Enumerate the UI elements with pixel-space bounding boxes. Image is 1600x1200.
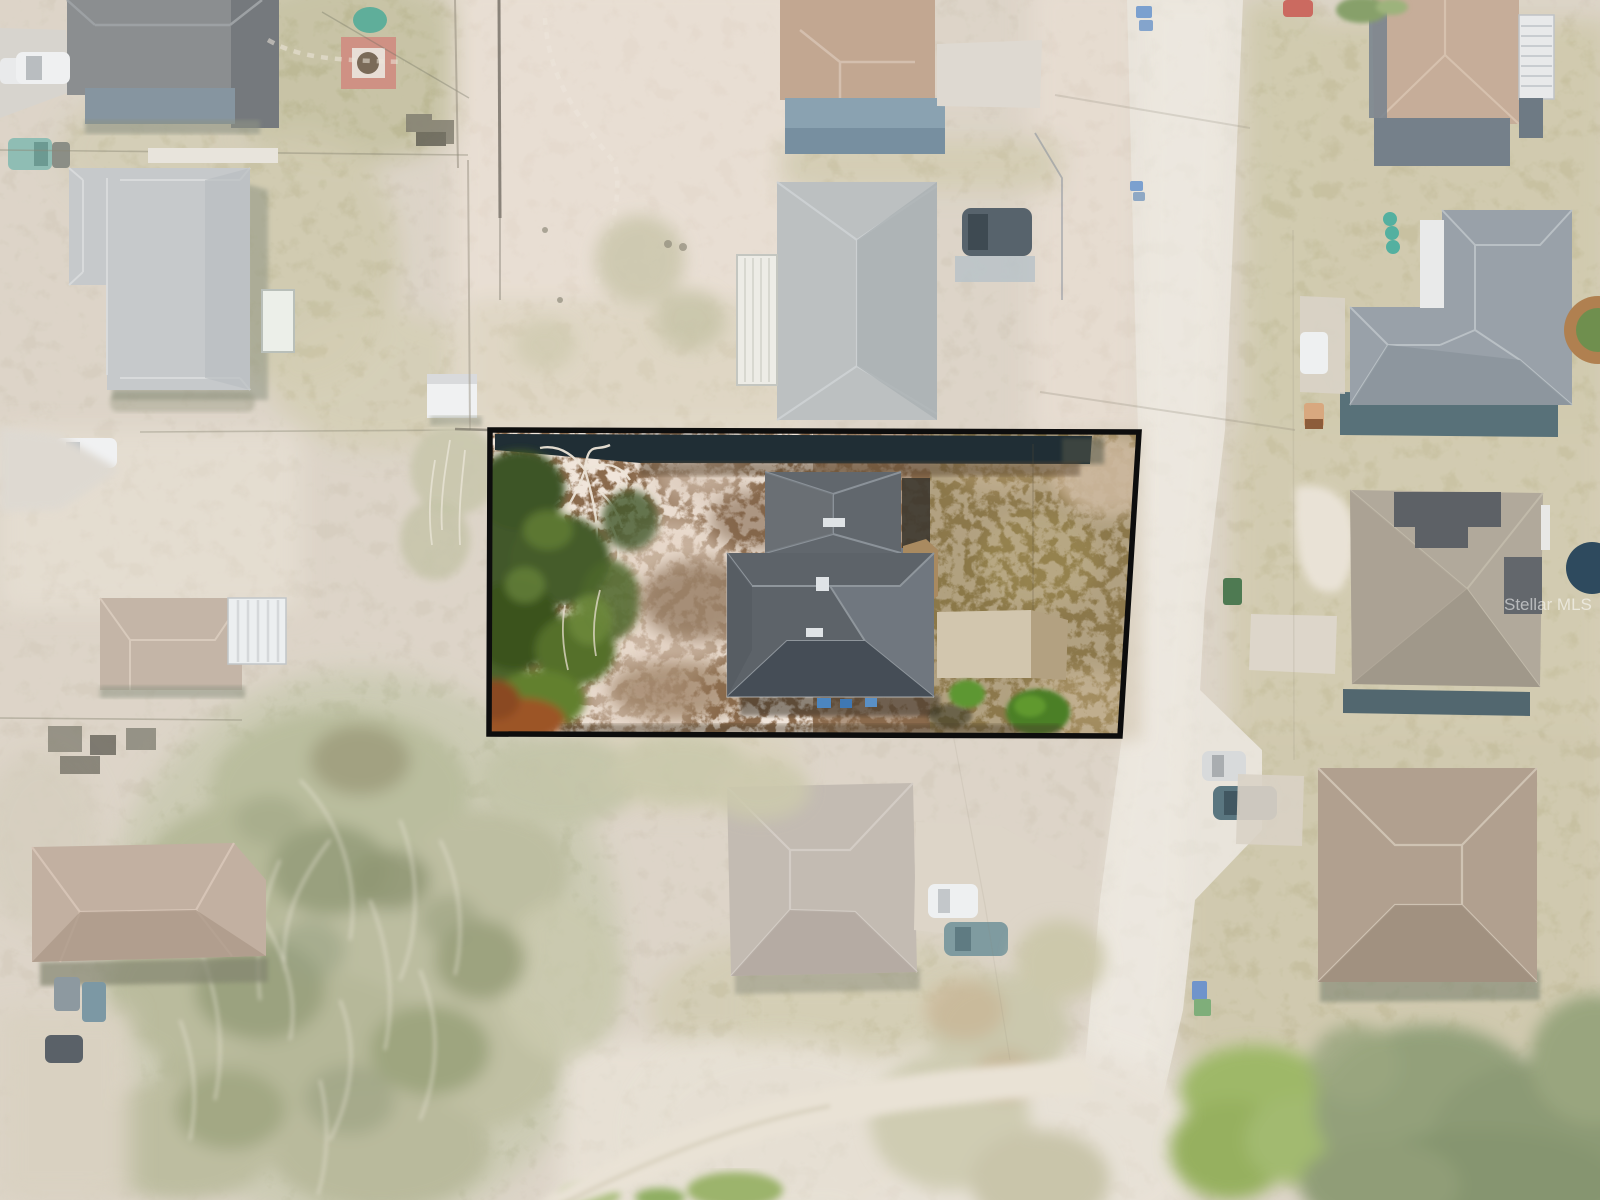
svg-text:Stellar MLS: Stellar MLS [1504,595,1592,614]
